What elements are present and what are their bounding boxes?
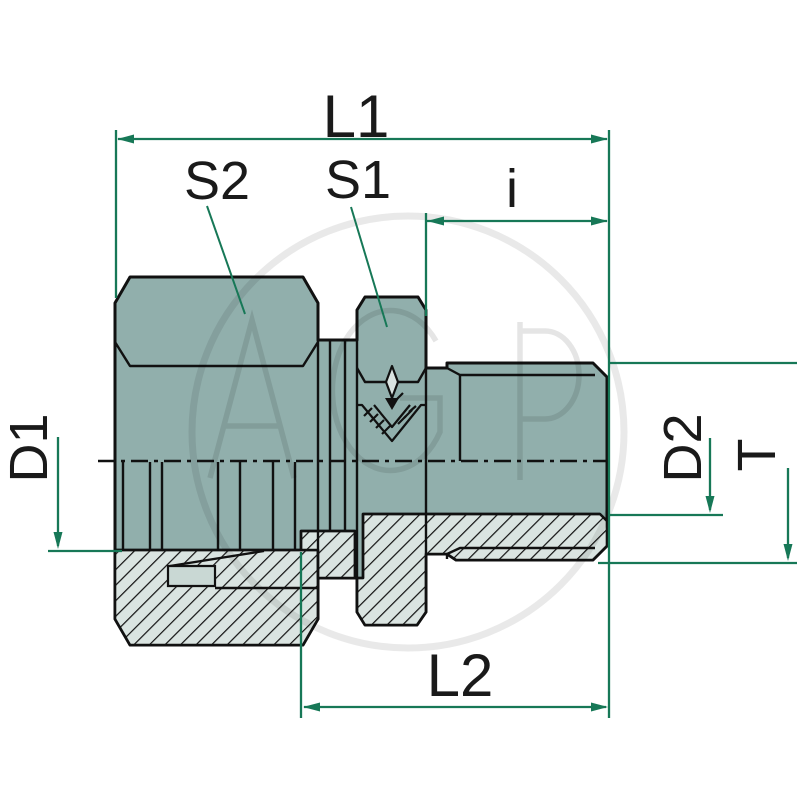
nut-section-hatch xyxy=(115,550,318,645)
arrow-d1-down xyxy=(54,532,63,549)
arrow-l1-right xyxy=(591,135,608,144)
label-s1: S1 xyxy=(325,150,391,210)
arrow-l2-right xyxy=(591,703,608,712)
cutting-ring xyxy=(168,566,215,586)
product-technical-drawing: AGP xyxy=(0,0,800,800)
label-l2: L2 xyxy=(427,642,494,709)
stud-section-hatch xyxy=(357,514,607,625)
label-d1: D1 xyxy=(0,413,59,482)
arrow-l1-left xyxy=(117,135,134,144)
label-t: T xyxy=(727,439,787,472)
arrow-i-right xyxy=(591,217,608,226)
label-i: i xyxy=(506,159,518,219)
label-d2: D2 xyxy=(653,413,713,482)
label-s2: S2 xyxy=(184,151,250,211)
fitting-dimension-diagram: AGP xyxy=(0,0,800,800)
label-l1: L1 xyxy=(323,83,390,150)
arrow-l2-left xyxy=(303,703,320,712)
arrow-t-down xyxy=(784,544,793,561)
arrow-d2-down xyxy=(706,496,715,513)
